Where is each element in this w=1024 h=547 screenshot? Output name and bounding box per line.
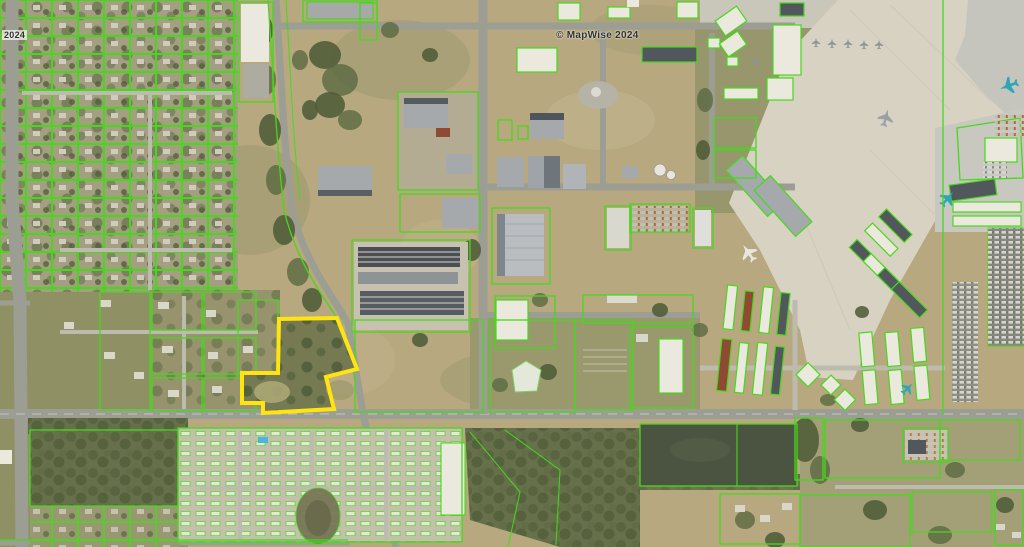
aerial-map [0,0,1024,547]
mobile-home-park [178,428,465,544]
residential-northwest [0,0,238,292]
pool [258,437,268,443]
corner-year-watermark: 2024 [2,30,27,40]
school-building [241,4,269,98]
ponds [640,424,797,486]
mapwise-watermark: © MapWise 2024 [556,30,639,41]
aerial-map-view: © MapWise 2024 2024 [0,0,1024,547]
